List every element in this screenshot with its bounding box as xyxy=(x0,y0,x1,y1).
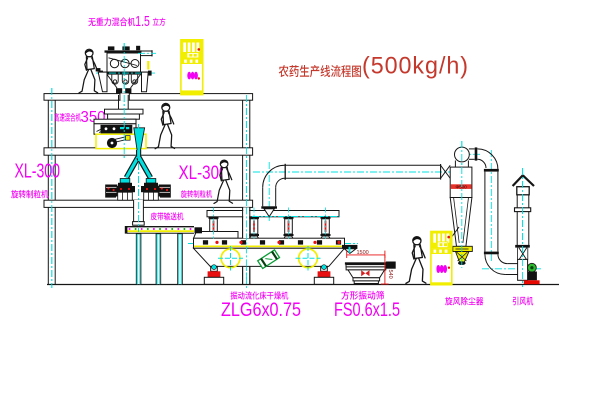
svg-text:1500: 1500 xyxy=(357,250,369,256)
svg-text:1.5: 1.5 xyxy=(135,13,150,30)
svg-text:XL-300: XL-300 xyxy=(15,161,61,183)
svg-text:ZLG6x0.75: ZLG6x0.75 xyxy=(221,300,301,321)
svg-text:(500kg/h): (500kg/h) xyxy=(362,53,469,80)
svg-text:FS0.6x1.5: FS0.6x1.5 xyxy=(334,300,400,321)
svg-text:540: 540 xyxy=(387,270,393,279)
